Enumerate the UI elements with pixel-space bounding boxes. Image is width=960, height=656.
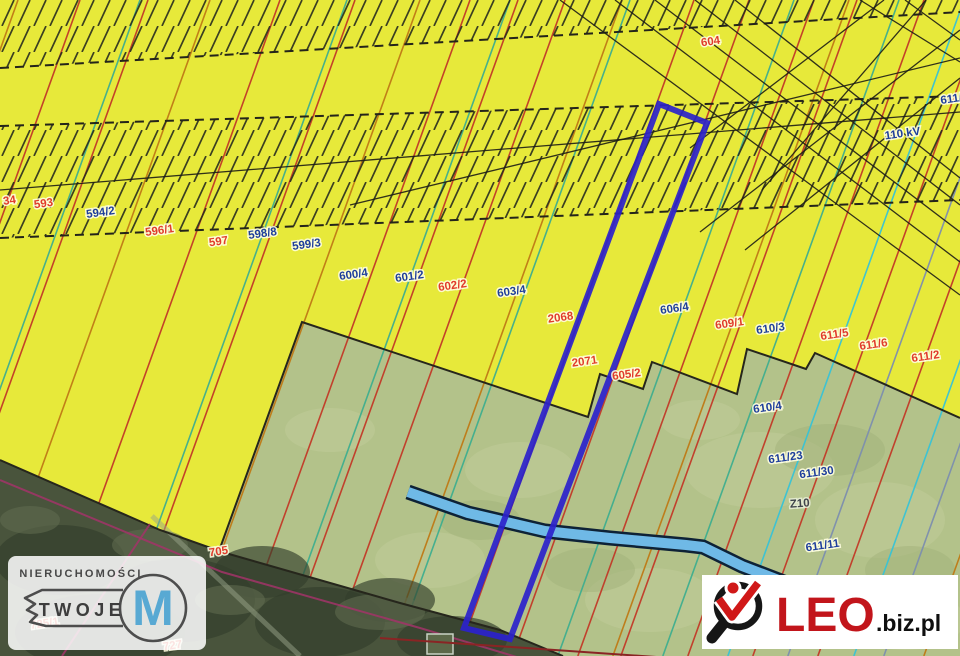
building-footprint [427,634,453,654]
portal-logo-graphic: LEO .biz.pl [702,575,958,649]
agency-logo-graphic: NIERUCHOMOŚCI TWOJE M [8,556,206,650]
agency-letter: M [132,580,174,636]
cadastral-map-screenshot: 34593594/2596/1597598/8599/3600/4601/260… [0,0,960,656]
parcel-label: 34 [2,194,17,208]
agency-sub-text: TWOJE [39,600,126,620]
portal-brand-text: LEO [776,589,875,642]
terrain-mottle [545,548,635,592]
agency-name-text: NIERUCHOMOŚCI [19,567,142,580]
watermark-portal-logo: LEO .biz.pl [702,575,958,649]
magnifier-check-icon [712,580,759,639]
portal-suffix-text: .biz.pl [876,610,941,636]
forest-texture [0,506,60,534]
parcel-label: Z10 [789,497,810,510]
watermark-agency-logo: NIERUCHOMOŚCI TWOJE M [8,556,206,650]
